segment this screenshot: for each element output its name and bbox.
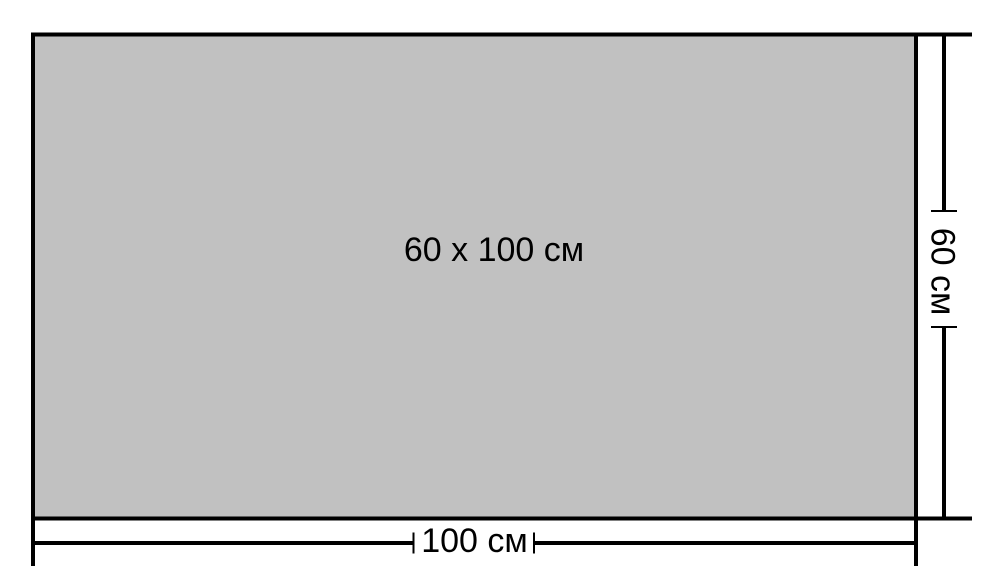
svg-text:100 см: 100 см	[421, 522, 528, 560]
svg-text:60 см: 60 см	[924, 228, 962, 316]
svg-text:60 х 100 см: 60 х 100 см	[404, 231, 584, 269]
